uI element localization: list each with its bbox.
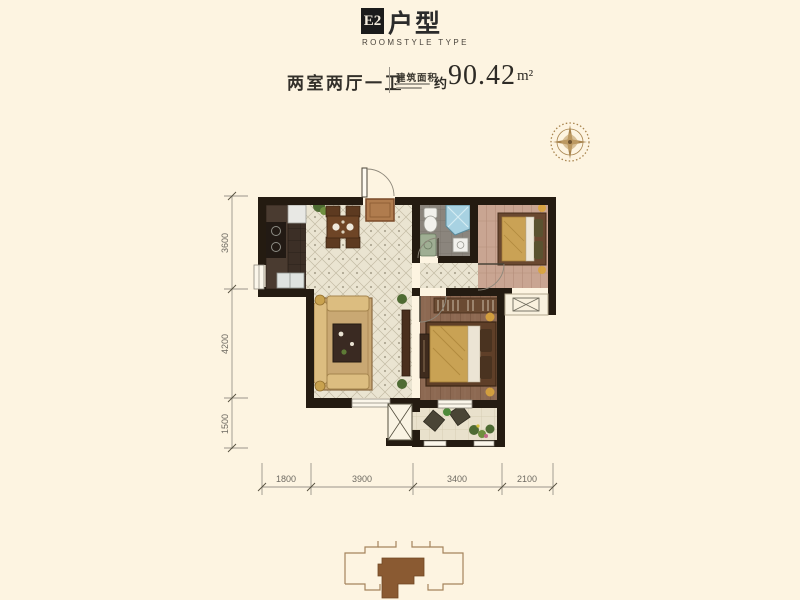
bedside-lamp	[538, 266, 546, 274]
balcony-window	[424, 441, 446, 446]
plant	[443, 408, 451, 416]
svg-text:1800: 1800	[276, 474, 296, 484]
unit-type-title: 户型	[388, 4, 442, 40]
room-layout-text: 两室两厅一卫	[287, 69, 404, 94]
hallway-floor	[420, 263, 478, 288]
bedside-lamp	[486, 313, 495, 322]
fridge	[288, 205, 306, 223]
area-fineprint	[396, 83, 430, 91]
ac-platform-x-icon	[505, 294, 548, 315]
area-unit: m²	[517, 68, 533, 85]
flue-x-icon	[388, 404, 412, 440]
area-label: 建筑面积	[396, 70, 438, 84]
coffee-table	[333, 324, 361, 362]
area-value: 90.42	[448, 60, 516, 92]
floorplan-page: E2 户型 ROOMSTYLE TYPE 两室两厅一卫 建筑面积 约 90.42…	[0, 0, 800, 600]
unit-type-subtitle: ROOMSTYLE TYPE	[362, 38, 469, 47]
bedside-lamp	[538, 204, 546, 212]
plant	[397, 294, 407, 304]
stove	[266, 222, 286, 258]
balcony-window	[474, 441, 494, 446]
floor-plan: 3600 4200 1500 1800 3900 3400 2100	[210, 150, 600, 510]
svg-text:3400: 3400	[447, 474, 467, 484]
bath-sink	[453, 238, 468, 252]
svg-text:3900: 3900	[352, 474, 372, 484]
tv-cabinet	[402, 310, 410, 376]
secondary-bedroom-area	[498, 204, 546, 274]
svg-text:4200: 4200	[220, 334, 230, 354]
entry-door[interactable]	[362, 168, 394, 197]
bedside-lamp	[486, 388, 495, 397]
kitchen-sink	[277, 273, 304, 288]
svg-text:3600: 3600	[220, 233, 230, 253]
building-key-plan	[330, 538, 480, 600]
plant	[397, 379, 407, 389]
unit-type-badge: E2	[361, 8, 384, 34]
area-approx: 约	[434, 73, 447, 92]
svg-text:2100: 2100	[517, 474, 537, 484]
dimension-left: 3600 4200 1500	[220, 192, 248, 452]
info-divider	[389, 67, 390, 93]
dimension-bottom: 1800 3900 3400 2100	[258, 463, 557, 495]
sofa	[314, 302, 327, 384]
svg-text:1500: 1500	[220, 414, 230, 434]
unit-highlight[interactable]	[378, 558, 424, 598]
